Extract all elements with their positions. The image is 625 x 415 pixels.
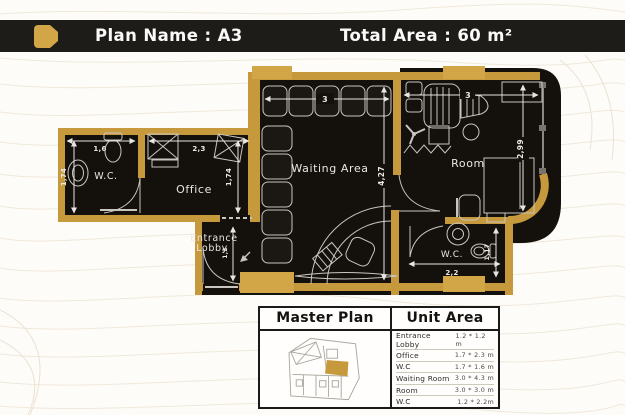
room-label-wc-bottom: W.C.	[441, 250, 463, 260]
row-value: 3.0 * 3.0 m	[455, 386, 494, 394]
room-label-office: Office	[176, 183, 212, 196]
unit-area-header: Unit Area	[392, 308, 498, 331]
row-value: 1.2 * 1.2 m	[456, 332, 495, 348]
master-plan-header: Master Plan	[260, 308, 390, 331]
room-label-room: Room	[451, 157, 485, 170]
row-label: W.C	[396, 362, 411, 371]
poster-page: { "header": { "plan_name_label": "Plan N…	[0, 0, 625, 415]
row-value: 1.7 * 1.6 m	[455, 363, 494, 371]
dim-wc2-height: 1,17	[483, 243, 491, 260]
row-label: Entrance Lobby	[396, 331, 456, 349]
row-value: 1.2 * 2.2m	[457, 398, 494, 406]
dim-wc-width: 1,6	[93, 145, 106, 153]
dim-wc-height: 1,74	[60, 168, 68, 186]
highlighted-unit	[325, 360, 348, 376]
dim-room-height: 2,99	[516, 139, 525, 159]
unit-area-rows: Entrance Lobby 1.2 * 1.2 m Office 1.7 * …	[392, 331, 498, 407]
row-label: Office	[396, 351, 419, 360]
unit-area-cell: Unit Area Entrance Lobby 1.2 * 1.2 m Off…	[392, 308, 498, 407]
row-value: 1.7 * 2.3 m	[455, 351, 494, 359]
row-label: W.C	[396, 397, 411, 406]
table-row: W.C 1.7 * 1.6 m	[396, 362, 494, 374]
dim-waiting-height: 4,27	[377, 166, 386, 186]
master-plan-thumbnail	[260, 331, 390, 407]
room-label-waiting: Waiting Area	[291, 162, 368, 175]
unit-area-table: Master Plan	[258, 306, 500, 409]
dim-waiting-width: 3	[322, 95, 328, 104]
table-row: Entrance Lobby 1.2 * 1.2 m	[396, 331, 494, 350]
row-label: Room	[396, 386, 418, 395]
table-row: Office 1.7 * 2.3 m	[396, 350, 494, 362]
table-row: Room 3.0 * 3.0 m	[396, 385, 494, 397]
room-label-wc-left: W.C.	[94, 171, 117, 182]
dim-wc2-width: 2,2	[445, 269, 458, 277]
row-value: 3.0 * 4.3 m	[455, 374, 494, 382]
table-row: Waiting Room 3.0 * 4.3 m	[396, 373, 494, 385]
table-row: W.C 1.2 * 2.2m	[396, 396, 494, 407]
row-label: Waiting Room	[396, 374, 450, 383]
room-label-entrance-line2: Lobby	[196, 243, 228, 254]
dim-office-height: 1,74	[225, 168, 233, 186]
dim-office-width: 2,3	[192, 145, 205, 153]
dim-room-width: 3	[465, 91, 471, 100]
master-plan-map	[275, 333, 375, 405]
master-plan-cell: Master Plan	[260, 308, 392, 407]
